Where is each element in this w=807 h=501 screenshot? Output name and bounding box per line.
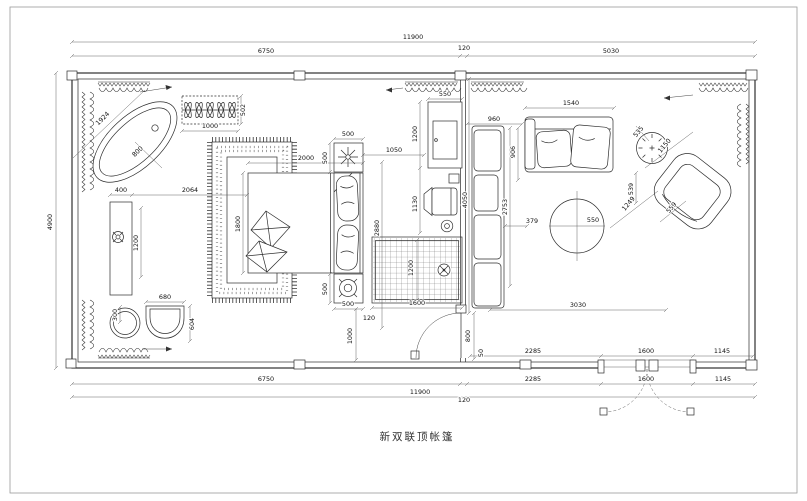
pillow <box>336 175 359 221</box>
dim-label: 120 <box>458 396 470 404</box>
dim-label: 1200 <box>132 235 140 251</box>
plant-icon <box>338 147 358 167</box>
dim-label: 2000 <box>298 154 314 162</box>
curtain-top-left <box>98 82 150 92</box>
dim-label: 1130 <box>411 196 419 212</box>
dim-label: 680 <box>159 293 171 301</box>
nightstand-bottom <box>334 274 363 303</box>
dim-label: 1600 <box>638 375 654 383</box>
top-sofa <box>525 117 613 172</box>
dim-label: 300 <box>111 309 119 321</box>
entry-double-door <box>598 359 696 416</box>
door-swing-arc <box>416 313 461 358</box>
bedroom-door <box>411 305 468 359</box>
curtain-top-middle-right <box>471 82 527 92</box>
dim-label: 3030 <box>570 301 586 309</box>
dim-label: 1800 <box>234 216 242 232</box>
dim-label: 1600 <box>638 347 654 355</box>
pillow <box>336 225 359 271</box>
dim-label: 120 <box>363 314 375 322</box>
tv-cabinet <box>428 102 462 168</box>
dim-label: 1145 <box>715 375 731 383</box>
dim-label: 500 <box>342 130 354 138</box>
dim-label: 906 <box>509 146 517 158</box>
curtain-left-lower <box>82 300 94 350</box>
dim-label: 2285 <box>525 347 541 355</box>
dim-label: 2880 <box>373 220 381 236</box>
bed <box>246 173 363 273</box>
dim-label: 1249 <box>620 195 637 213</box>
dim-label: 379 <box>526 217 538 225</box>
dim-label: 2285 <box>525 375 541 383</box>
floor-plan-canvas: 11900 6750 120 5030 4900 6750 2285 1600 … <box>0 0 807 501</box>
dim-label: 1200 <box>407 260 415 276</box>
drawing-title: 新双联顶帐篷 <box>380 430 455 443</box>
curtain-left-upper <box>82 92 94 192</box>
dim-label: 400 <box>115 186 127 194</box>
dim-label: 1200 <box>411 126 419 142</box>
dim-label: 500 <box>321 152 329 164</box>
dim-label: 1600 <box>409 299 425 307</box>
dimensions: 11900 6750 120 5030 4900 6750 2285 1600 … <box>46 33 757 404</box>
dim-label: 2753 <box>501 199 509 215</box>
tv-screen <box>433 121 457 159</box>
planter-box <box>182 96 238 124</box>
dimension-lines-main <box>56 42 755 397</box>
dim-label: 6750 <box>258 47 274 55</box>
nightstand-top <box>334 143 363 172</box>
dim-label: 2064 <box>182 186 198 194</box>
dim-label: 6750 <box>258 375 274 383</box>
floor-plan-page: 11900 6750 120 5030 4900 6750 2285 1600 … <box>0 0 807 501</box>
dim-label: 1000 <box>346 328 354 344</box>
bedroom-zone <box>210 102 463 303</box>
doors <box>411 305 696 415</box>
dim-label: 11900 <box>410 388 430 396</box>
bedroom-chair <box>424 188 457 232</box>
dim-label: 502 <box>239 104 247 116</box>
curtain-bottom-left <box>98 348 150 358</box>
dim-label: 960 <box>488 115 500 123</box>
vanity-counter <box>110 202 132 295</box>
curtain-top-middle-left <box>405 82 461 92</box>
dim-label: 1145 <box>714 347 730 355</box>
wall-control <box>449 174 459 183</box>
dim-label: 11900 <box>403 33 423 41</box>
curtain-top-right <box>699 83 749 167</box>
dim-label: 500 <box>342 300 354 308</box>
dim-label: 120 <box>458 44 470 52</box>
dim-label: 1540 <box>563 99 579 107</box>
dim-label: 5030 <box>603 47 619 55</box>
dim-label: 1000 <box>202 122 218 130</box>
dim-label: 604 <box>188 318 196 330</box>
dim-label: 50 <box>477 349 485 357</box>
dim-label: 4900 <box>46 214 54 230</box>
dim-label: 1050 <box>386 146 402 154</box>
ceiling-fan-icon <box>437 263 452 278</box>
dim-label: 800 <box>464 330 472 342</box>
lounge-chair <box>146 306 184 338</box>
long-sofa <box>472 126 504 308</box>
dim-label: 550 <box>439 90 451 98</box>
dim-label: 4050 <box>461 192 469 208</box>
floor-lamp-icon <box>441 220 453 232</box>
dimension-ticks-main <box>54 40 757 399</box>
dim-label: 550 <box>587 216 599 224</box>
dim-label: 500 <box>321 283 329 295</box>
dim-label: 539 <box>627 183 635 195</box>
living-zone <box>472 117 738 308</box>
